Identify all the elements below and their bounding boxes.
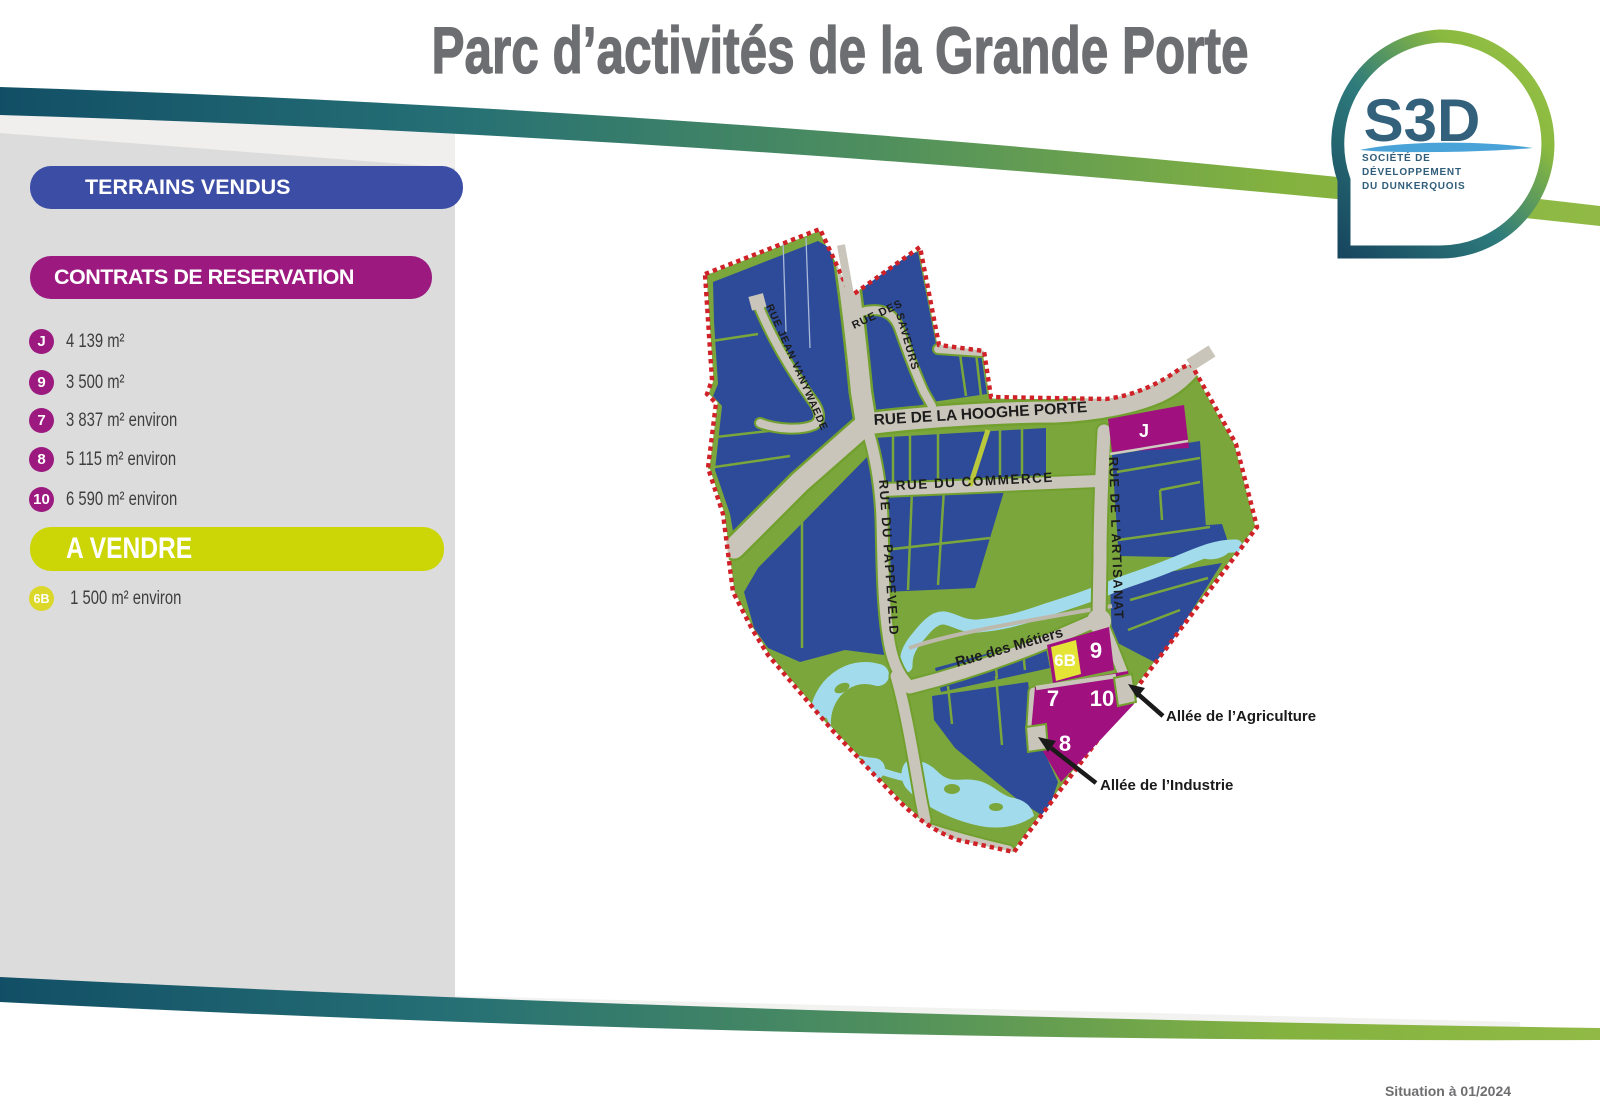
svg-text:Allée de l’Agriculture: Allée de l’Agriculture <box>1166 708 1316 725</box>
svg-text:9: 9 <box>1090 638 1102 663</box>
svg-text:J: J <box>1139 421 1149 441</box>
svg-text:DÉVELOPPEMENT: DÉVELOPPEMENT <box>1362 165 1462 178</box>
svg-text:Allée de l’Industrie: Allée de l’Industrie <box>1100 777 1233 794</box>
svg-text:7: 7 <box>1047 686 1059 711</box>
svg-text:8: 8 <box>1059 731 1071 756</box>
svg-text:DU DUNKERQUOIS: DU DUNKERQUOIS <box>1362 181 1465 192</box>
svg-text:10: 10 <box>1090 686 1114 711</box>
svg-text:6B: 6B <box>1054 651 1076 670</box>
svg-text:SOCIÉTÉ DE: SOCIÉTÉ DE <box>1362 151 1431 164</box>
